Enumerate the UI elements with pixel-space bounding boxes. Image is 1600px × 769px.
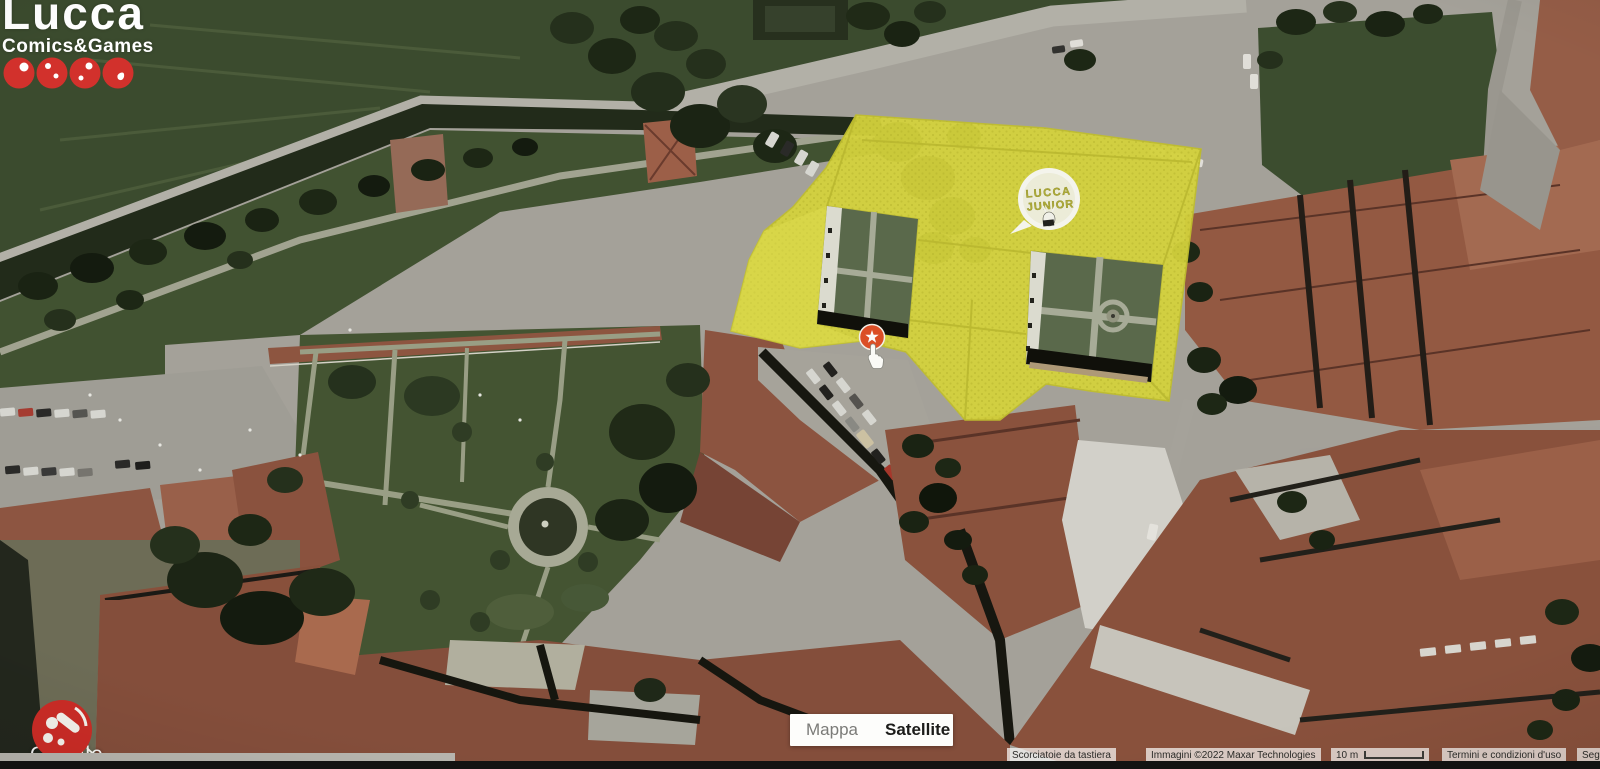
courtyard-east [1026, 251, 1163, 383]
scale-label: 10 m [1336, 750, 1358, 761]
report-label: Seg [1582, 750, 1600, 761]
logo-balls-icon [2, 56, 152, 90]
satellite-button[interactable]: Satellite [885, 720, 950, 740]
map-canvas[interactable]: LUCCA JUNIOR [0, 0, 1600, 769]
logo-subtitle: Comics&Games [2, 37, 154, 56]
scale-control: 10 m [1331, 748, 1429, 762]
terms-label: Termini e condizioni d'uso [1447, 750, 1561, 761]
keyboard-shortcuts-label: Scorciatoie da tastiera [1012, 750, 1111, 761]
map-type-control: Mappa Satellite [790, 714, 953, 746]
logo-title: Lucca [2, 0, 154, 36]
lucca-comics-logo: Lucca Comics&Games [2, 0, 154, 94]
keyboard-shortcuts-link[interactable]: Scorciatoie da tastiera [1007, 748, 1116, 762]
screen-bezel [0, 761, 1600, 769]
screenshot-root: LUCCA JUNIOR Lucca Comics&Games [0, 0, 1600, 769]
courtyard-west [817, 206, 918, 338]
terms-link[interactable]: Termini e condizioni d'uso [1442, 748, 1566, 762]
scale-bar [1364, 751, 1424, 759]
imagery-label: Immagini ©2022 Maxar Technologies [1151, 750, 1316, 761]
fountain [508, 487, 588, 567]
report-error-link[interactable]: Seg [1577, 748, 1600, 762]
imagery-attribution: Immagini ©2022 Maxar Technologies [1146, 748, 1321, 762]
map-button[interactable]: Mappa [806, 720, 858, 740]
screen-edge-highlight [0, 753, 455, 761]
